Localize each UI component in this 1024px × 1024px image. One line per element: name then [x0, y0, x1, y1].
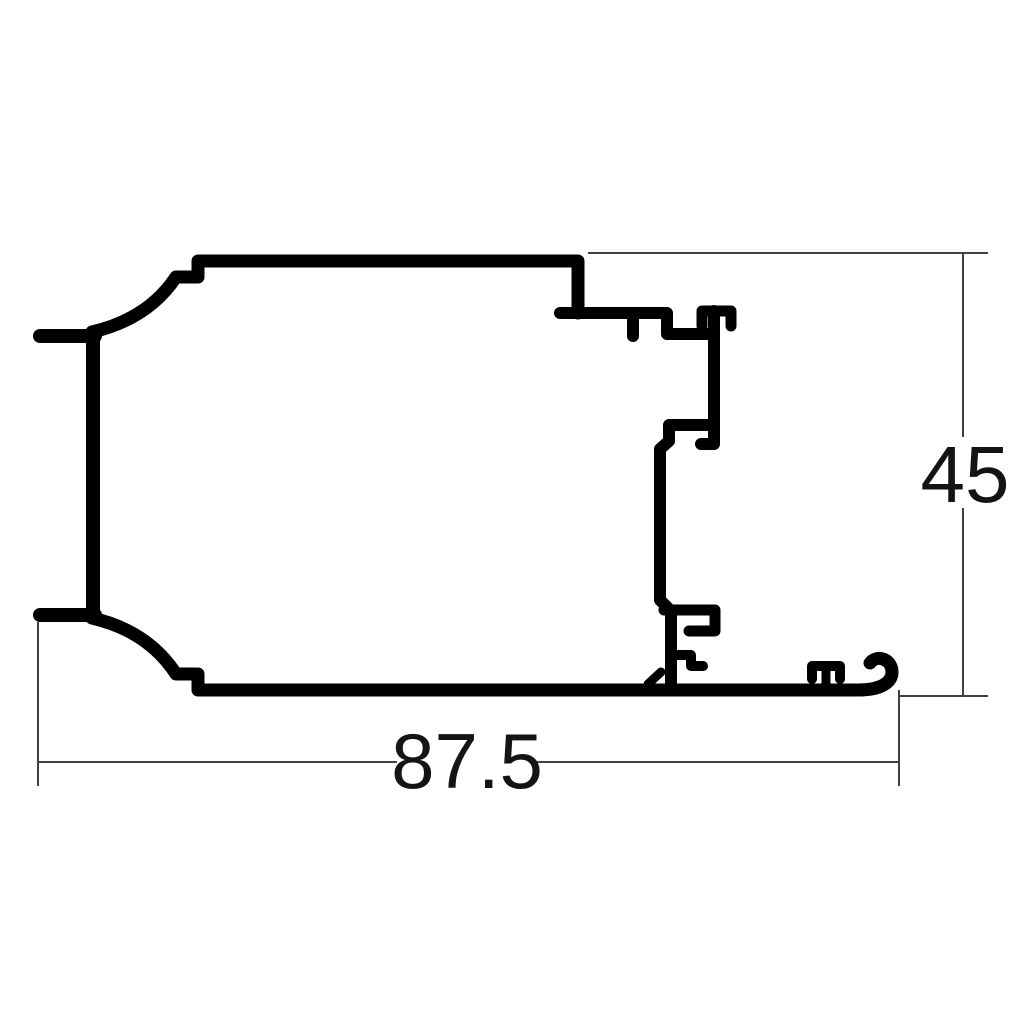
dimension-lines	[38, 253, 988, 786]
bottom-edge	[92, 618, 892, 690]
top-edge	[92, 261, 578, 332]
base-spur	[648, 672, 661, 684]
profile-outline	[40, 261, 892, 690]
drawing-canvas: 45 87.5	[0, 0, 1024, 1024]
height-dim-label: 45	[921, 430, 1010, 519]
lower-tab	[673, 655, 703, 666]
profile-drawing: 45 87.5	[0, 0, 1024, 1024]
width-dim-label: 87.5	[391, 717, 543, 805]
